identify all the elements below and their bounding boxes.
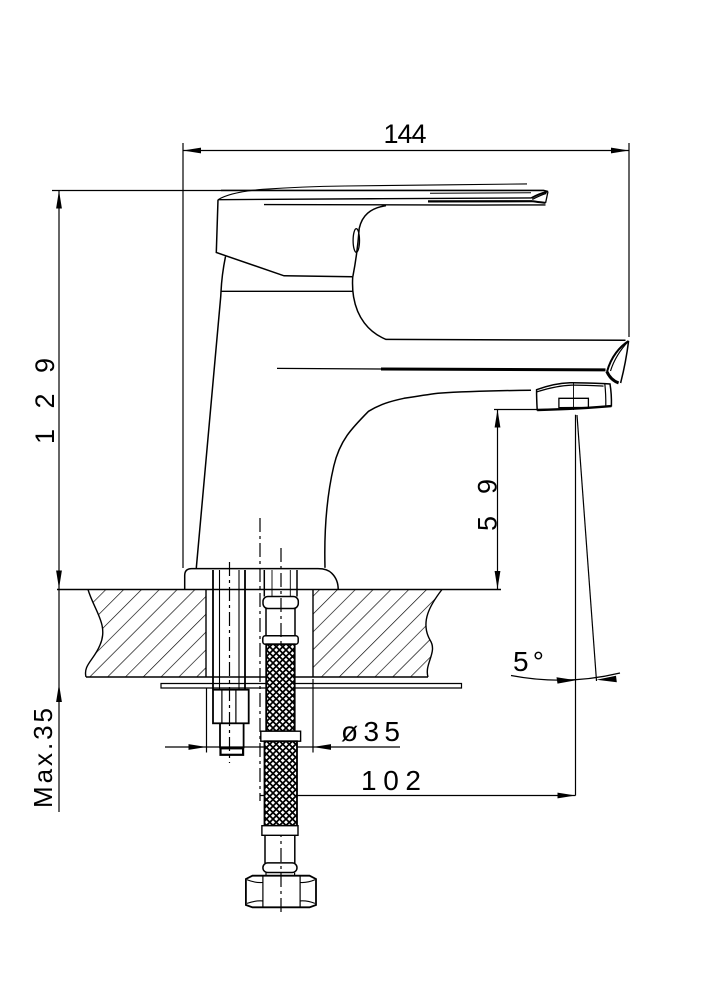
svg-text:Max.35: Max.35 — [28, 708, 58, 808]
svg-text:144: 144 — [384, 119, 427, 149]
svg-text:129: 129 — [30, 358, 60, 444]
svg-text:ø35: ø35 — [341, 716, 400, 747]
svg-text:5°: 5° — [513, 646, 544, 677]
svg-text:102: 102 — [361, 765, 421, 796]
